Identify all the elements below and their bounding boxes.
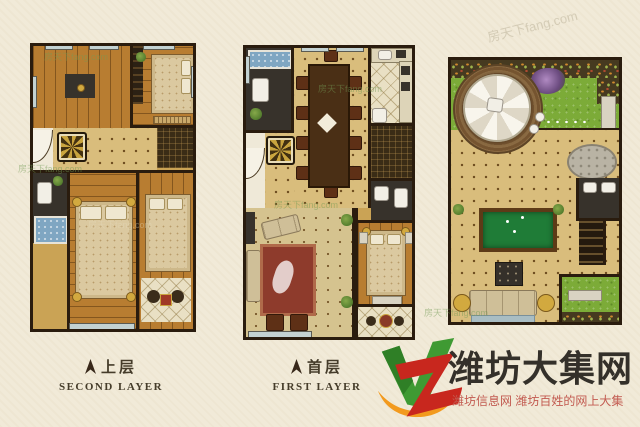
staircase: [371, 126, 412, 178]
armchair: [147, 290, 160, 303]
parasol-center: [486, 97, 504, 113]
billiard-ball: [513, 230, 516, 233]
plant: [453, 204, 464, 215]
billiard-ball: [506, 220, 509, 223]
floorplan-garden-layer: [448, 57, 622, 325]
shower-tray: [374, 186, 389, 201]
shower-tray: [601, 182, 616, 193]
wall-segment: [603, 221, 606, 265]
side-table: [537, 294, 555, 312]
toilet: [394, 188, 408, 208]
label-zh-line: 首层: [262, 356, 372, 379]
site-tagline: 潍坊信息网 潍坊百姓的网上大集: [452, 392, 623, 409]
pillow: [181, 60, 191, 76]
window: [30, 76, 37, 108]
window: [45, 43, 73, 50]
watermark: 房天下fang.com: [18, 162, 82, 175]
floor-medallion-icon: [266, 136, 295, 165]
floor-medallion-icon: [57, 132, 87, 162]
tv-cabinet: [246, 212, 255, 244]
kitchen-sink: [378, 50, 392, 60]
label-zh: 上层: [101, 360, 137, 376]
pillow: [370, 234, 384, 245]
garden-bench: [601, 96, 616, 132]
pillow: [387, 234, 401, 245]
window: [336, 45, 364, 52]
garden-chair: [529, 124, 539, 134]
appliance: [401, 66, 410, 75]
floorplan-poster: 房天下fang.com 房天下fang.com 房天下fang.com 房天下f…: [0, 0, 640, 427]
garden-bench: [568, 290, 602, 301]
dining-chair: [348, 106, 362, 120]
walk-in-closet: [157, 128, 193, 168]
plant: [53, 176, 63, 186]
bed-post: [72, 292, 82, 302]
watermark: 房天下fang.com: [424, 306, 488, 319]
window: [143, 43, 175, 50]
toilet: [252, 78, 269, 102]
balcony-window: [248, 331, 312, 339]
sofa: [246, 250, 261, 302]
armchair: [171, 290, 184, 303]
armchair: [394, 316, 404, 326]
tea-table: [160, 294, 172, 306]
plant: [341, 296, 353, 308]
stove: [396, 50, 406, 58]
label-en: SECOND LAYER: [56, 381, 166, 393]
plant: [553, 204, 564, 215]
staircase: [579, 221, 603, 265]
bathtub: [34, 216, 68, 244]
game-rug: [495, 262, 523, 286]
window: [89, 43, 119, 50]
pillow: [181, 78, 191, 94]
site-name: 潍坊大集网: [448, 340, 633, 392]
toilet: [37, 182, 52, 204]
label-first-layer: 首层 FIRST LAYER: [262, 356, 372, 393]
watermark: 房天下fang.com: [88, 218, 152, 231]
bathtub: [248, 50, 292, 69]
billiard-table: [479, 208, 557, 252]
window: [191, 66, 196, 98]
dining-chair: [348, 136, 362, 150]
label-zh: 首层: [307, 360, 343, 376]
pillow: [149, 198, 165, 210]
dining-chair: [348, 166, 362, 180]
plant: [136, 52, 146, 62]
watermark: 房天下fang.com: [485, 5, 579, 46]
window: [243, 56, 250, 84]
flower-bed: [562, 312, 619, 322]
armchair: [290, 314, 308, 331]
appliance: [401, 82, 410, 91]
armchair: [366, 316, 376, 326]
nightstand: [405, 232, 414, 244]
north-arrow-icon: [85, 359, 96, 379]
bed-post: [126, 292, 136, 302]
pillow: [167, 198, 183, 210]
fridge: [372, 108, 387, 123]
label-second-layer: 上层 SECOND LAYER: [56, 356, 166, 393]
armchair: [266, 314, 284, 331]
toilet: [583, 182, 597, 193]
garden-chair: [535, 112, 545, 122]
balcony-window: [69, 323, 135, 331]
nightstand: [359, 232, 368, 244]
watermark: 房天下fang.com: [44, 50, 108, 63]
bed-post: [126, 197, 136, 207]
bed-post: [72, 197, 82, 207]
billiard-ball: [521, 216, 524, 219]
plant: [250, 108, 262, 120]
watermark: 房天下fang.com: [318, 82, 382, 95]
north-arrow-icon: [291, 359, 302, 379]
stone-patio: [567, 144, 617, 180]
label-zh-line: 上层: [56, 356, 166, 379]
desk-lamp: [77, 84, 85, 92]
round-table: [379, 314, 393, 328]
floorplan-second-layer: [30, 43, 196, 332]
watermark: 房天下fang.com: [274, 198, 338, 211]
plant: [341, 214, 353, 226]
bed-runner: [153, 116, 191, 124]
label-en: FIRST LAYER: [262, 381, 372, 393]
site-logo: 潍坊大集网 潍坊信息网 潍坊百姓的网上大集: [374, 336, 640, 427]
window: [301, 45, 329, 52]
